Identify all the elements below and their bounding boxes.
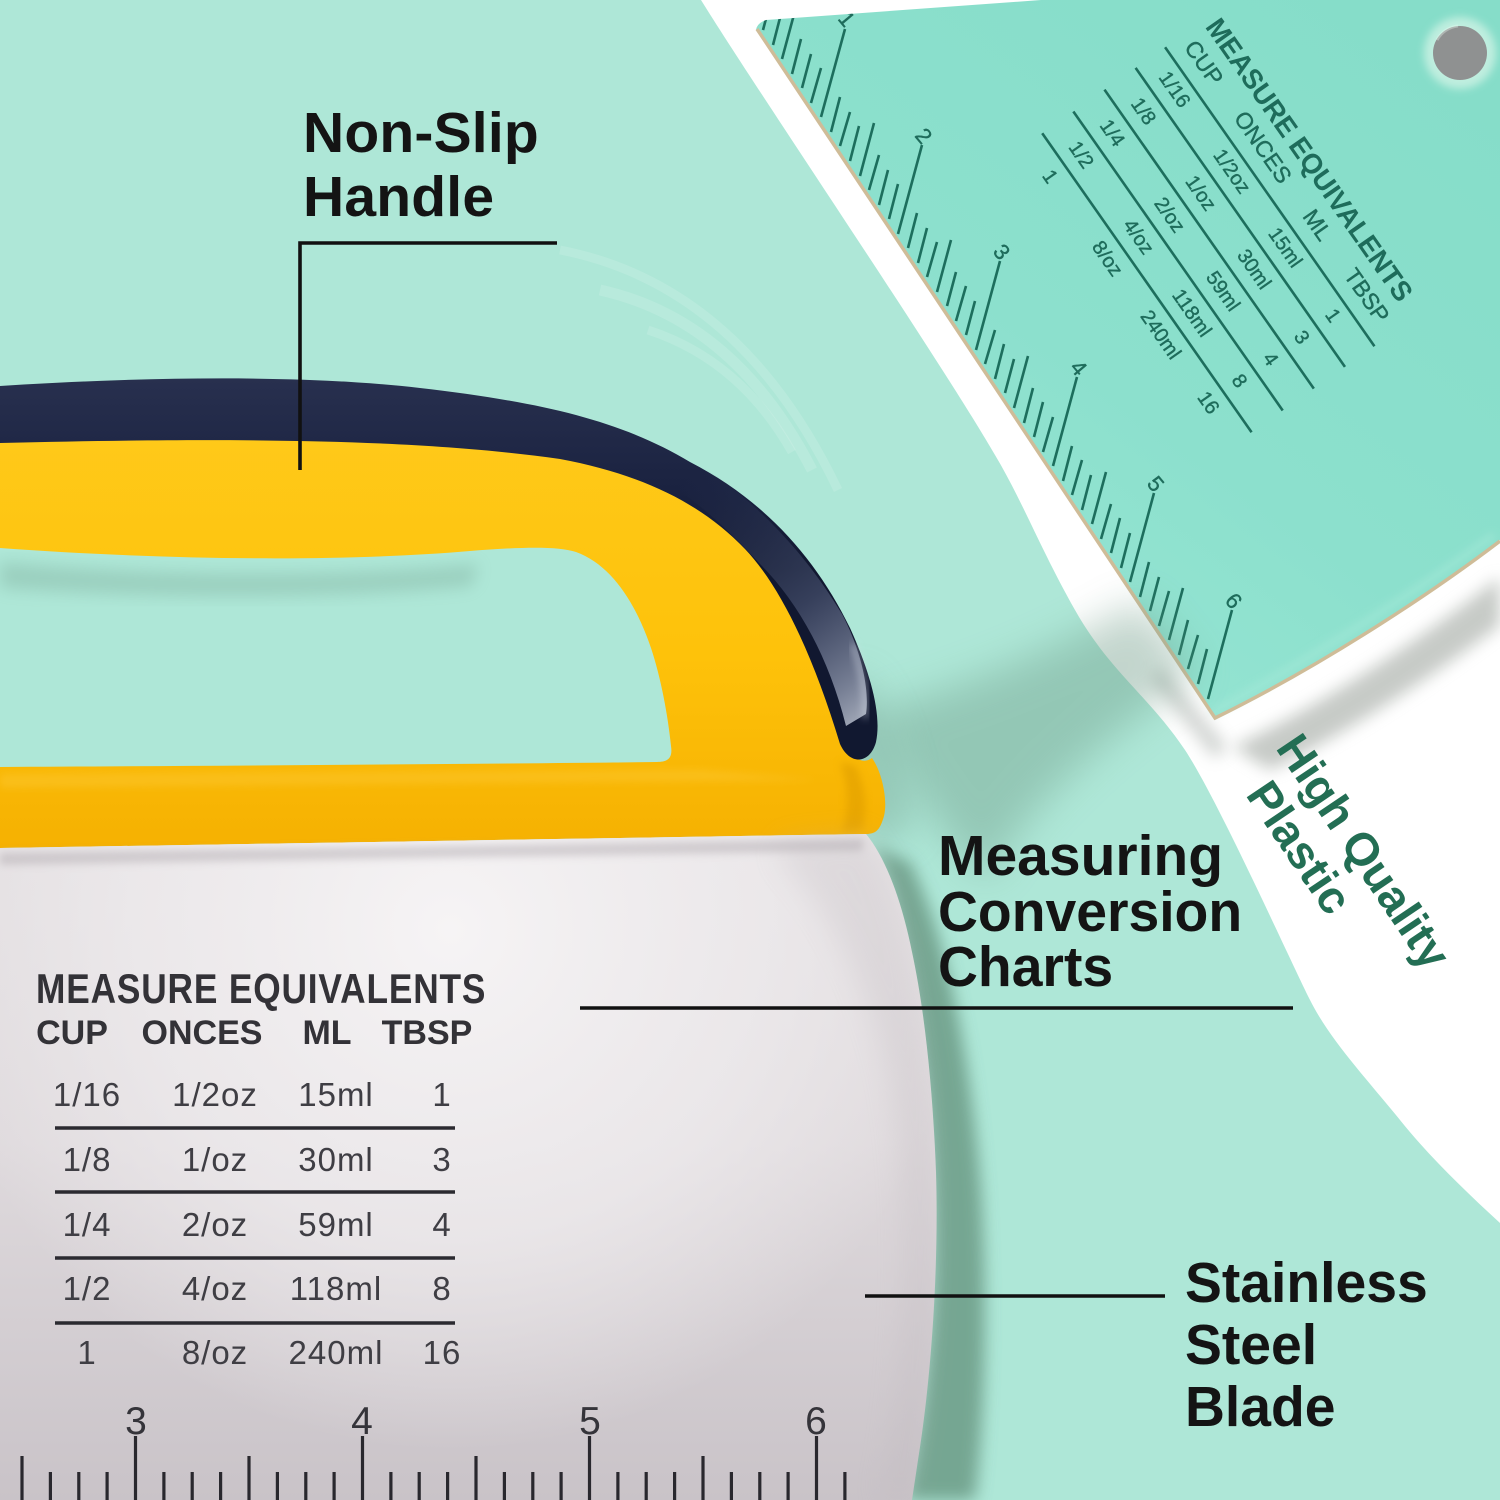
svg-text:CUP: CUP: [36, 1014, 108, 1052]
svg-text:3: 3: [125, 1400, 147, 1443]
svg-text:1: 1: [432, 1076, 451, 1113]
svg-text:118ml: 118ml: [290, 1270, 382, 1307]
svg-text:1/8: 1/8: [63, 1141, 112, 1178]
svg-text:1/4: 1/4: [63, 1206, 112, 1243]
svg-text:30ml: 30ml: [298, 1141, 374, 1178]
svg-text:Charts: Charts: [938, 934, 1113, 998]
svg-text:Non-Slip: Non-Slip: [303, 101, 539, 165]
svg-text:ONCES: ONCES: [142, 1014, 263, 1052]
svg-text:240ml: 240ml: [289, 1334, 384, 1371]
svg-text:Handle: Handle: [303, 165, 494, 229]
svg-text:15ml: 15ml: [298, 1076, 374, 1113]
svg-text:4: 4: [432, 1206, 451, 1243]
svg-text:16: 16: [423, 1334, 462, 1371]
svg-text:1/2oz: 1/2oz: [172, 1076, 258, 1113]
svg-text:ML: ML: [302, 1014, 351, 1052]
svg-text:MEASURE EQUIVALENTS: MEASURE EQUIVALENTS: [36, 966, 486, 1013]
svg-text:5: 5: [579, 1400, 601, 1443]
svg-text:1/16: 1/16: [53, 1076, 121, 1113]
svg-text:8: 8: [432, 1270, 451, 1307]
svg-text:4: 4: [351, 1400, 373, 1443]
svg-text:1/oz: 1/oz: [182, 1141, 248, 1178]
svg-text:6: 6: [805, 1400, 827, 1443]
svg-text:Blade: Blade: [1185, 1374, 1336, 1438]
svg-text:1: 1: [77, 1334, 96, 1371]
svg-text:59ml: 59ml: [298, 1206, 374, 1243]
svg-text:2/oz: 2/oz: [182, 1206, 248, 1243]
svg-text:Steel: Steel: [1185, 1312, 1317, 1376]
svg-text:Stainless: Stainless: [1185, 1250, 1428, 1314]
svg-text:TBSP: TBSP: [382, 1014, 473, 1052]
svg-text:1/2: 1/2: [63, 1270, 112, 1307]
svg-text:4/oz: 4/oz: [182, 1270, 248, 1307]
svg-text:3: 3: [432, 1141, 451, 1178]
svg-text:8/oz: 8/oz: [182, 1334, 248, 1371]
